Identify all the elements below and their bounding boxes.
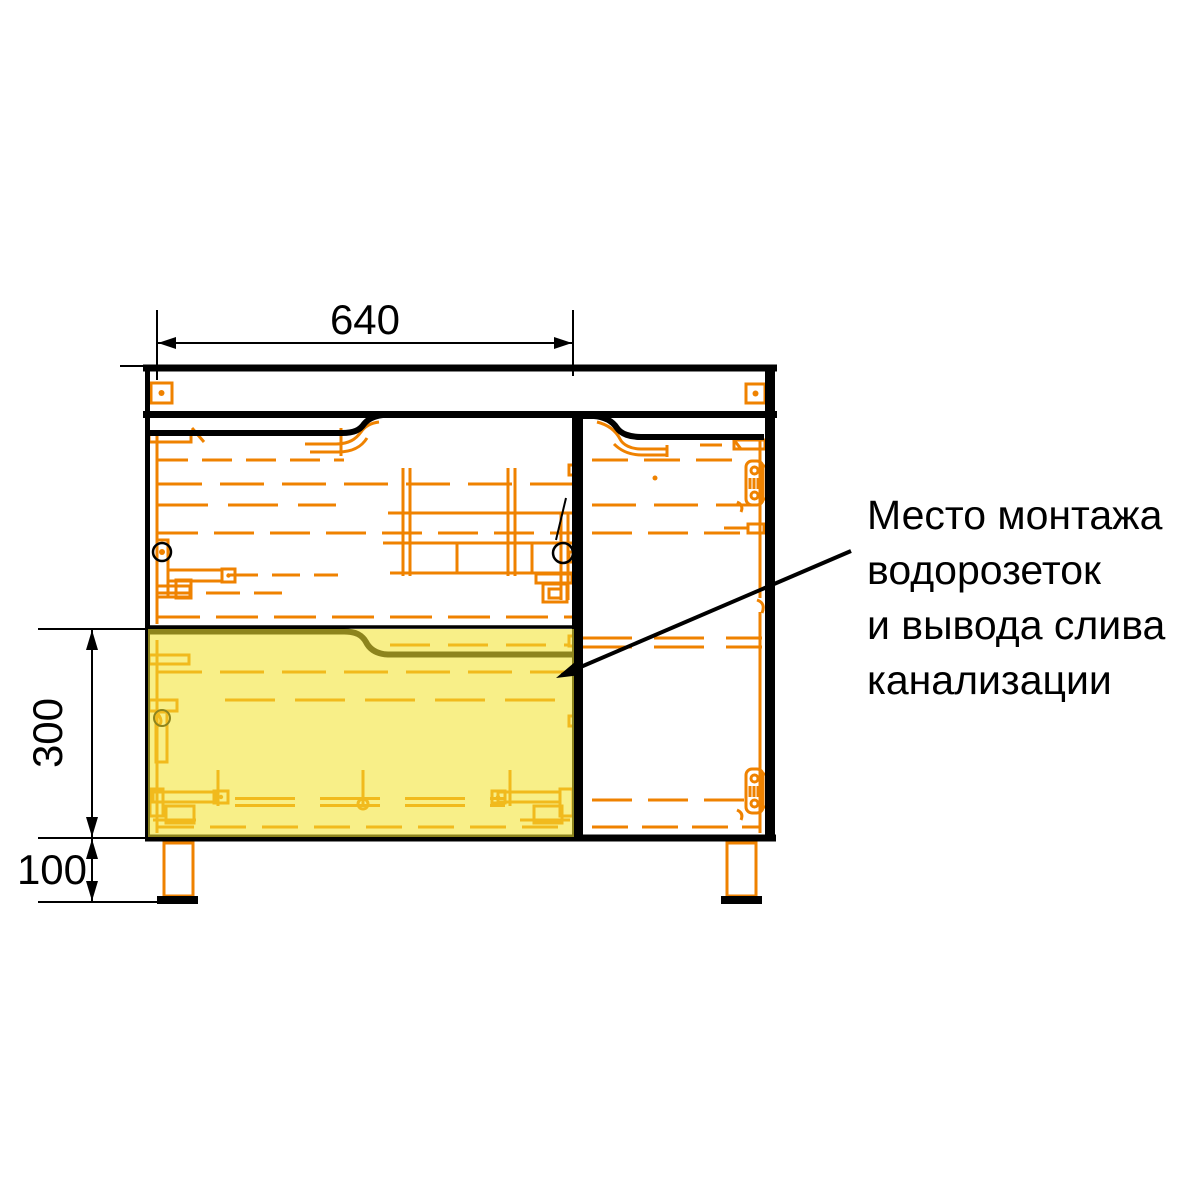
dimension-label-leg-height: 100: [17, 846, 87, 893]
vanity-cabinet-drawing: 640 300 100 Место монтажа водорозеток и …: [0, 0, 1200, 1200]
leg-right: [727, 843, 756, 896]
drawer-slide-bracket-left: [157, 540, 338, 598]
annotation-line-3: и вывода слива: [867, 602, 1166, 648]
arrowhead: [86, 839, 98, 859]
annotation-callout: Место монтажа водорозеток и вывода слива…: [556, 492, 1166, 703]
annotation-line-1: Место монтажа: [867, 492, 1163, 538]
arrowhead: [554, 337, 572, 349]
leg-left: [164, 843, 193, 896]
dimension-label-width: 640: [330, 296, 400, 343]
arrowhead: [86, 817, 98, 837]
dimension-300: 300: [24, 629, 147, 838]
leg-right-foot: [721, 896, 762, 904]
dimension-100: 100: [17, 838, 162, 902]
arrowhead: [86, 630, 98, 650]
arrowhead: [158, 337, 176, 349]
highlighted-installation-zone: [148, 629, 574, 837]
annotation-line-4: канализации: [867, 657, 1112, 703]
arrowhead: [86, 881, 98, 901]
dimension-label-drawer-height: 300: [24, 698, 71, 768]
leader-line: [562, 551, 851, 675]
annotation-line-2: водорозеток: [867, 547, 1102, 593]
siphon-cutout-assembly: [383, 468, 576, 602]
technical-drawing-page: 640 300 100 Место монтажа водорозеток и …: [0, 0, 1200, 1200]
leg-left-foot: [157, 896, 198, 904]
